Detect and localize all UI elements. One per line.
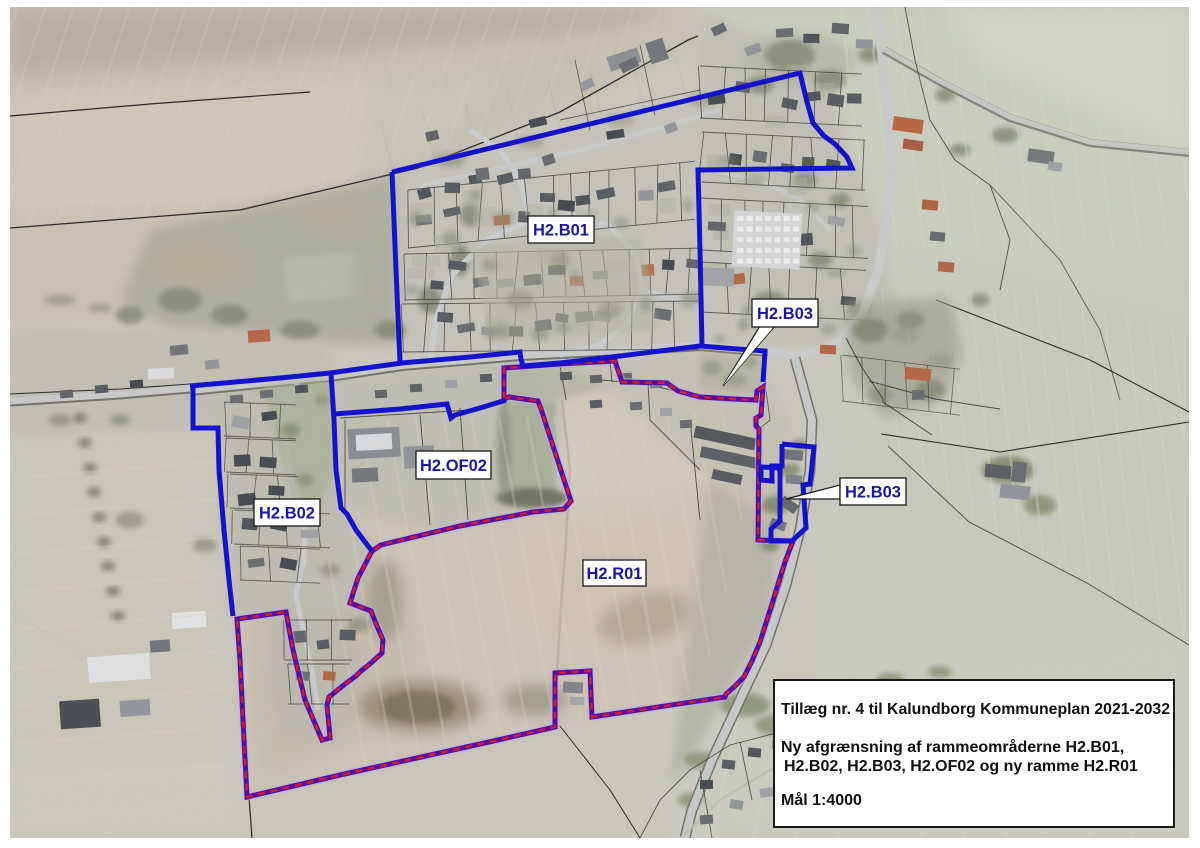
svg-text:Tillæg nr. 4 til Kalundborg Ko: Tillæg nr. 4 til Kalundborg Kommuneplan … [781, 701, 1170, 718]
svg-text:H2.OF02: H2.OF02 [420, 457, 487, 475]
svg-text:H2.B03: H2.B03 [757, 305, 813, 323]
svg-text:H2.R01: H2.R01 [587, 565, 643, 583]
svg-text:H2.B02, H2.B03, H2.OF02 og ny: H2.B02, H2.B03, H2.OF02 og ny ramme H2.R… [784, 758, 1138, 775]
svg-text:H2.B02: H2.B02 [259, 504, 315, 522]
svg-text:Ny afgrænsning af rammeområder: Ny afgrænsning af rammeområderne H2.B01, [781, 738, 1124, 756]
svg-text:Mål 1:4000: Mål 1:4000 [781, 791, 862, 809]
svg-text:H2.B01: H2.B01 [533, 221, 589, 239]
svg-text:H2.B03: H2.B03 [845, 483, 901, 501]
